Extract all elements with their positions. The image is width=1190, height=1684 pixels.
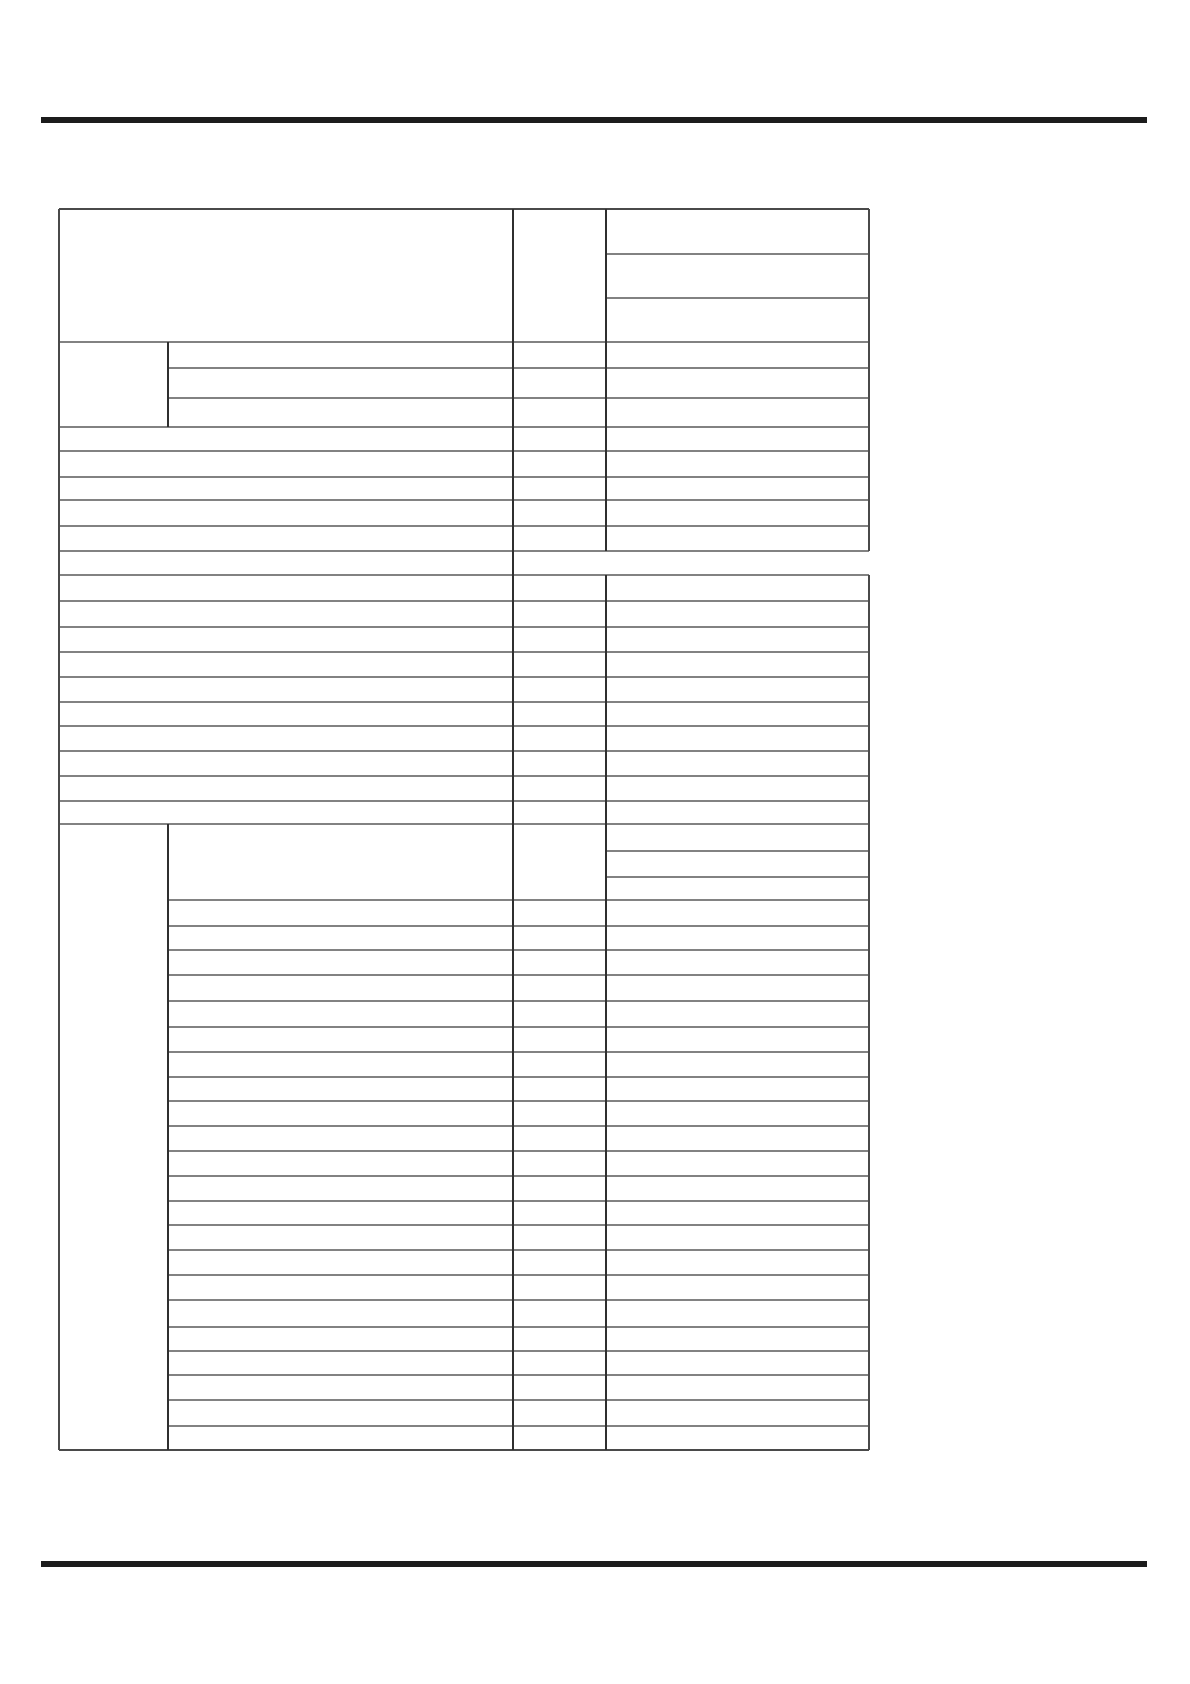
table-hline: [606, 253, 869, 255]
table-hline: [59, 823, 869, 825]
table-hline: [168, 397, 869, 399]
table-hline: [59, 750, 869, 752]
table-vline: [605, 209, 607, 551]
table-hline: [168, 1350, 869, 1352]
table-hline: [168, 1374, 869, 1376]
table-edge-hline: [59, 1449, 869, 1451]
table-hline: [168, 1100, 869, 1102]
table-hline: [168, 1326, 869, 1328]
table-vline: [167, 342, 169, 427]
table-hline: [168, 1175, 869, 1177]
table-hline: [59, 550, 869, 552]
table-hline: [59, 426, 869, 428]
table-hline: [606, 850, 869, 852]
table-hline: [59, 725, 869, 727]
table-hline: [59, 341, 869, 343]
table-hline: [606, 876, 869, 878]
table-hline: [59, 775, 869, 777]
table-hline: [59, 525, 869, 527]
table-hline: [168, 1299, 869, 1301]
table-hline: [168, 1051, 869, 1053]
table-hline: [59, 800, 869, 802]
table-hline: [168, 1425, 869, 1427]
table-hline: [606, 297, 869, 299]
table-vline: [512, 209, 514, 1450]
table-edge-vline: [58, 209, 60, 1450]
table-hline: [59, 476, 869, 478]
bottom-rule: [41, 1561, 1147, 1567]
table-hline: [168, 1399, 869, 1401]
table-hline: [168, 899, 869, 901]
table-hline: [59, 450, 869, 452]
table-hline: [59, 499, 869, 501]
table-edge-vline: [868, 575, 870, 1450]
table-hline: [59, 626, 869, 628]
table-hline: [168, 1150, 869, 1152]
table-hline: [168, 1000, 869, 1002]
top-rule: [41, 117, 1147, 123]
table-edge-hline: [59, 208, 869, 210]
table-hline: [59, 574, 869, 576]
table-vline: [167, 824, 169, 1450]
table-edge-vline: [868, 209, 870, 551]
table-hline: [168, 1274, 869, 1276]
table-hline: [168, 367, 869, 369]
table-hline: [59, 701, 869, 703]
table-hline: [168, 1249, 869, 1251]
table-hline: [168, 949, 869, 951]
table-hline: [168, 974, 869, 976]
table-hline: [168, 1125, 869, 1127]
table-vline: [605, 575, 607, 1450]
table-hline: [59, 651, 869, 653]
table-hline: [168, 1200, 869, 1202]
table-hline: [59, 676, 869, 678]
table-hline: [168, 1224, 869, 1226]
table-hline: [168, 1026, 869, 1028]
table-hline: [168, 1076, 869, 1078]
document-page: [0, 0, 1190, 1684]
table-hline: [168, 925, 869, 927]
table-hline: [59, 600, 869, 602]
